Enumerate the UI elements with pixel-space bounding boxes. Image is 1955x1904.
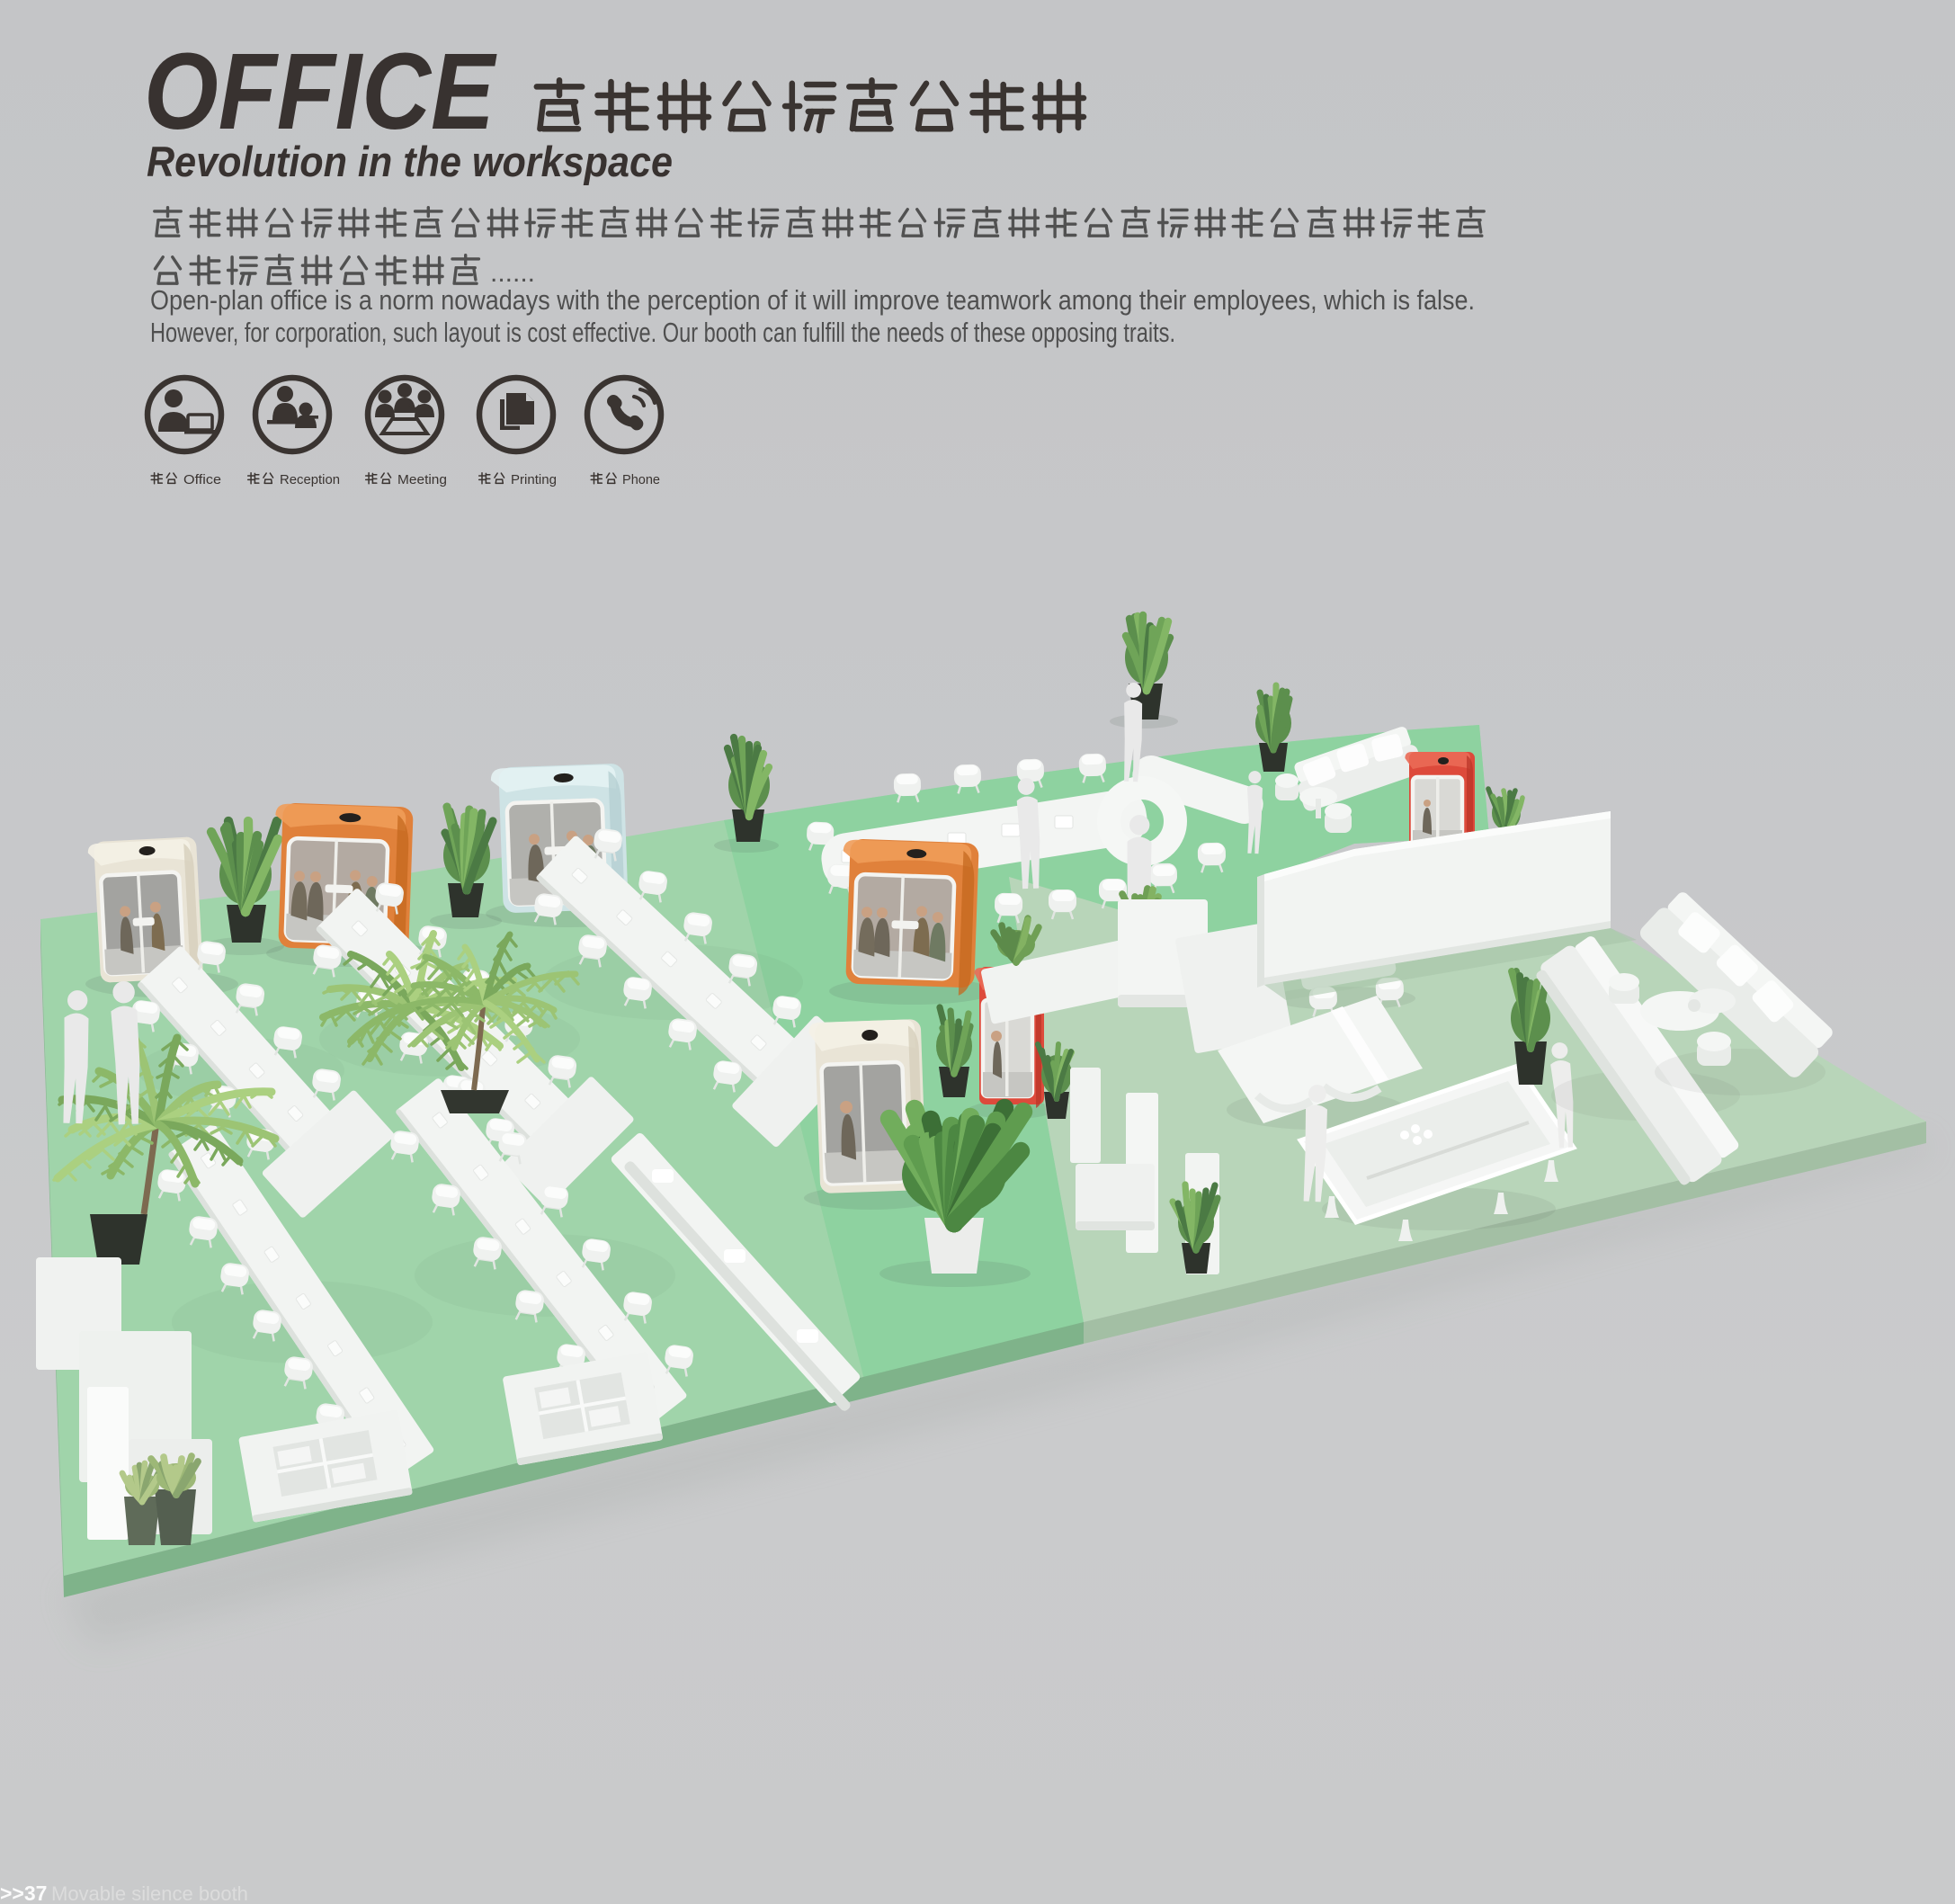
svg-text:Revolution in the workspace: Revolution in the workspace (147, 138, 673, 185)
svg-text:Office: Office (183, 472, 221, 487)
svg-text:Meeting: Meeting (397, 472, 447, 487)
svg-text:Reception: Reception (280, 472, 340, 487)
svg-text:However, for corporation, such: However, for corporation, such layout is… (150, 317, 1175, 348)
svg-text:OFFICE: OFFICE (144, 30, 497, 152)
svg-text:Phone: Phone (622, 472, 660, 487)
svg-text:Open-plan office is a norm now: Open-plan office is a norm nowadays with… (150, 284, 1475, 316)
svg-text:Movable silence booth: Movable silence booth (51, 1882, 248, 1904)
svg-text:Printing: Printing (511, 472, 557, 487)
svg-text:>>37: >>37 (0, 1882, 47, 1904)
